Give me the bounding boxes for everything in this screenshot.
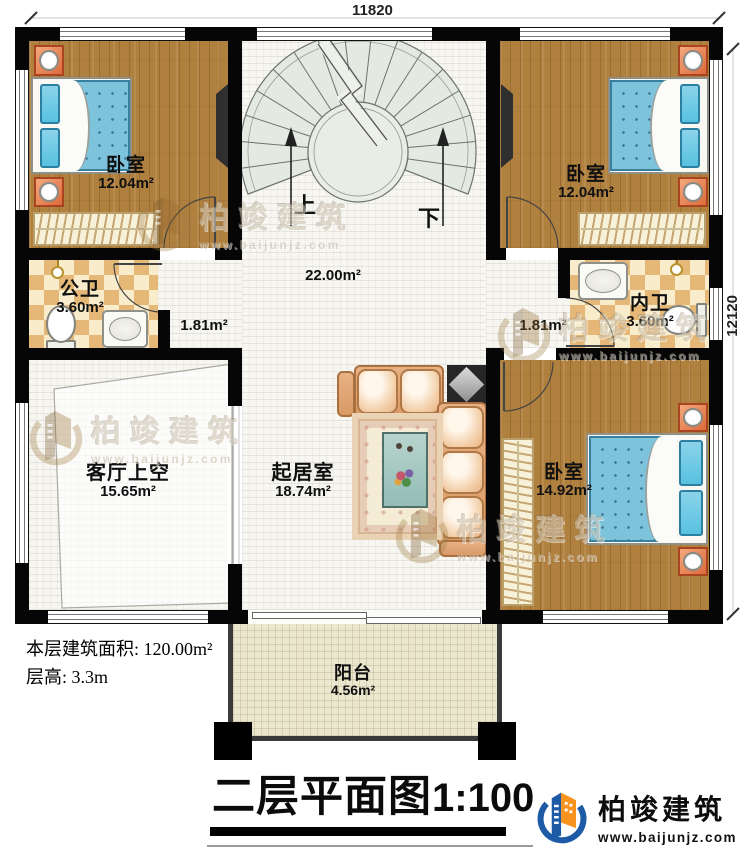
nightstand (34, 45, 64, 76)
sofa-cushion (441, 406, 484, 449)
sofa-cushion (400, 369, 441, 414)
tv (216, 84, 228, 168)
wall-h1-b (215, 248, 242, 260)
window (520, 27, 670, 41)
wall-living-bedroom3 (486, 360, 500, 610)
wall-h2-right-a (486, 348, 504, 360)
sofa-cushion (357, 369, 398, 414)
bed-pillow (680, 84, 700, 124)
balcony-rail-bottom (228, 736, 502, 741)
floor-corridor-left (158, 260, 242, 348)
bed-pillow (679, 440, 703, 486)
window (15, 70, 29, 210)
floor-plan-page: { "dimensions": { "width_top": "11820", … (0, 0, 750, 856)
window (60, 27, 185, 41)
room-label-bedroom-br: 卧室 14.92m² (536, 462, 592, 500)
wardrobe-rod (581, 228, 703, 230)
wardrobe-rod (36, 228, 156, 230)
window (709, 425, 723, 570)
room-label-stair-hall: 22.00m² (305, 268, 361, 285)
bed-pillow (40, 128, 60, 168)
window (709, 288, 723, 340)
plan-title: 二层平面图1:100 (212, 762, 534, 824)
dimension-top: 11820 (352, 2, 393, 19)
window (709, 60, 723, 215)
bed-blanket (645, 436, 677, 542)
plan-notes: 本层建筑面积: 120.00m² 层高: 3.3m (26, 636, 212, 692)
plan-title-text: 二层平面图 (212, 773, 432, 821)
nightstand (678, 547, 708, 576)
wall-h2-right-b (556, 348, 709, 360)
title-underline-bar (210, 827, 506, 836)
window (48, 610, 208, 624)
coffee-table (382, 432, 428, 508)
pillar (214, 722, 252, 760)
sink (578, 262, 628, 300)
sink (102, 310, 148, 348)
nightstand (678, 403, 708, 432)
sliding-door-leaf (366, 617, 481, 624)
wall-stairs-bedroom2 (486, 41, 500, 248)
note-floor-area: 本层建筑面积: 120.00m² (26, 636, 212, 664)
title-underline-thin (207, 845, 533, 847)
wall-bedroom1-stairs (228, 41, 242, 248)
nightstand (34, 177, 64, 207)
wall-stub-void-bottom (228, 564, 242, 610)
plan-title-scale: 1:100 (432, 776, 534, 820)
room-label-balcony: 阳台 4.56m² (331, 663, 375, 699)
brand-url: www.baijunjz.com (598, 830, 737, 845)
nightstand (678, 45, 708, 76)
bed-blanket (650, 80, 682, 171)
sliding-door-leaf (252, 612, 367, 619)
ceiling-lamp (670, 263, 683, 276)
wardrobe-rod (517, 441, 519, 603)
wall-h1-d (558, 248, 709, 260)
window (15, 403, 29, 563)
brand-logo-icon (534, 786, 590, 846)
bed-pillow (40, 84, 60, 124)
window (257, 27, 432, 41)
dimension-right: 12120 (724, 295, 741, 337)
bed-pillow (679, 490, 703, 536)
sofa-cushion (441, 451, 484, 494)
bed-pillow (680, 128, 700, 168)
stair-up-label: 上 (294, 188, 316, 220)
wall-publicbath-right (158, 310, 170, 348)
wall-h2-left (29, 348, 242, 360)
sofa-armrest (337, 371, 355, 417)
nightstand (678, 177, 708, 207)
wall-h1-a (29, 248, 160, 260)
toilet-tank (696, 303, 707, 337)
room-label-bedroom-tr: 卧室 12.04m² (558, 164, 614, 202)
pillar (478, 722, 516, 760)
ceiling-lamp (51, 266, 64, 279)
note-floor-height: 层高: 3.3m (26, 664, 212, 692)
room-label-corridor-right: 1.81m² (519, 318, 567, 335)
room-label-inner-bath: 内卫 3.60m² (626, 293, 674, 331)
room-label-living-void: 客厅上空 15.65m² (86, 462, 170, 501)
sofa-end (439, 540, 487, 557)
brand-block: 柏竣建筑 www.baijunjz.com (534, 786, 737, 846)
corner-tv-unit (447, 365, 486, 404)
room-label-bedroom-tl: 卧室 12.04m² (98, 155, 154, 193)
wall-stub-void-top (228, 360, 242, 406)
stair-down-label: 下 (418, 201, 440, 233)
sofa-cushion (441, 496, 484, 539)
wall-h1-c (486, 248, 506, 260)
room-label-public-bath: 公卫 3.60m² (56, 279, 104, 317)
tv (501, 84, 513, 168)
brand-name: 柏竣建筑 (598, 788, 737, 828)
window (543, 610, 668, 624)
wall-innerbath-left (558, 260, 570, 298)
room-label-living: 起居室 18.74m² (272, 462, 335, 501)
room-label-corridor-left: 1.81m² (180, 318, 228, 335)
